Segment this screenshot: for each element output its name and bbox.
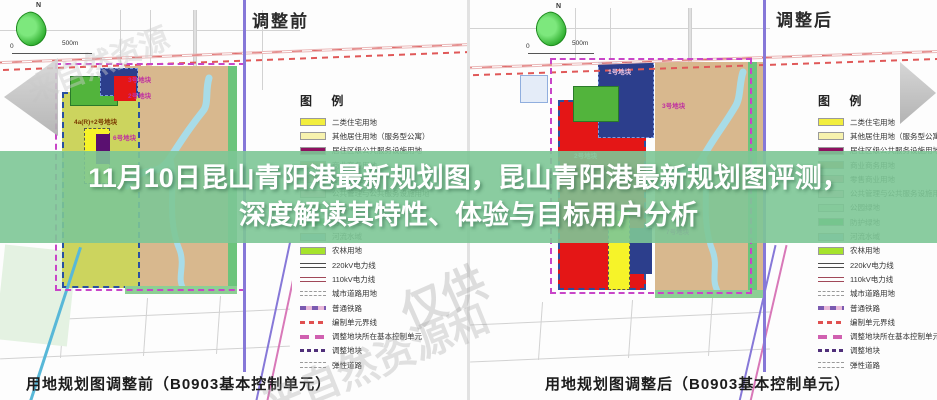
legend-row: 110kV电力线 <box>292 272 465 286</box>
legend-row: 二类住宅用地 <box>292 115 465 129</box>
scale-bar <box>528 53 594 54</box>
legend-swatch-icon <box>818 118 844 126</box>
legend-swatch-icon <box>300 291 326 296</box>
scale-label: 500m <box>62 40 78 47</box>
legend-label: 城市道路用地 <box>332 288 377 299</box>
legend-label: 编制单元界线 <box>332 317 377 328</box>
legend-label: 调整地块 <box>332 345 362 356</box>
scale-bar <box>12 53 92 54</box>
road-line <box>216 296 221 354</box>
map-state-label: 调整后 <box>776 6 833 31</box>
legend-label: 二类住宅用地 <box>332 117 377 128</box>
legend-row: 110kV电力线 <box>810 272 937 286</box>
road-line <box>708 298 713 356</box>
banner-title-line1: 11月10日昆山青阳港最新规划图，昆山青阳港最新规划图评测， <box>0 160 937 197</box>
legend-row: 220kV电力线 <box>292 258 465 272</box>
road-line <box>143 298 148 356</box>
location-inset-blob <box>531 8 570 50</box>
legend-swatch-icon <box>300 321 326 324</box>
parcel-label: 4a(R)+2号地块 <box>74 116 117 126</box>
legend-label: 调整地块 <box>850 345 880 356</box>
legend-swatch-icon <box>818 132 844 140</box>
legend-label: 110kV电力线 <box>332 274 375 285</box>
legend-label: 调整地块所在基本控制单元 <box>850 331 937 342</box>
legend-swatch-icon <box>300 247 326 255</box>
legend-label: 二类住宅用地 <box>850 117 895 128</box>
legend-row: 编制单元界线 <box>292 315 465 329</box>
parcel-label: 1号地块 <box>608 66 631 76</box>
legend-row: 农林用地 <box>810 244 937 258</box>
legend-row: 普通铁路 <box>292 301 465 315</box>
road-line <box>470 28 770 29</box>
road-line <box>610 8 611 60</box>
legend-label: 农林用地 <box>850 245 880 256</box>
next-arrow-icon[interactable] <box>900 62 936 124</box>
legend-label: 220kV电力线 <box>850 260 894 271</box>
legend-row: 其他居住用地（服务型公寓） <box>292 129 465 143</box>
title-banner: 11月10日昆山青阳港最新规划图，昆山青阳港最新规划图评测， 深度解读其特性、体… <box>0 151 937 243</box>
legend-label: 110kV电力线 <box>850 274 893 285</box>
legend-swatch-icon <box>818 306 844 310</box>
legend-swatch-icon <box>818 321 844 324</box>
prev-arrow-icon[interactable] <box>4 58 58 136</box>
parcel-label: 3号地块 <box>128 74 151 84</box>
legend-row: 调整地块 <box>810 344 937 358</box>
legend-row: 城市道路用地 <box>292 287 465 301</box>
legend-swatch-icon <box>300 118 326 126</box>
legend-swatch-icon <box>300 263 326 268</box>
legend-row: 农林用地 <box>292 244 465 258</box>
legend-label: 普通铁路 <box>850 303 880 314</box>
legend-swatch-icon <box>818 291 844 296</box>
legend-label: 编制单元界线 <box>850 317 895 328</box>
legend-row: 弹性道路 <box>292 358 465 372</box>
legend-swatch-icon <box>818 263 844 268</box>
legend-swatch-icon <box>300 362 326 368</box>
legend-label: 弹性道路 <box>850 360 880 371</box>
legend-label: 其他居住用地（服务型公寓） <box>332 131 430 142</box>
legend-label: 其他居住用地（服务型公寓） <box>850 131 937 142</box>
legend-label: 弹性道路 <box>332 360 362 371</box>
north-indicator: N <box>36 2 41 9</box>
legend-row: 其他居住用地（服务型公寓） <box>810 129 937 143</box>
legend-swatch-icon <box>300 132 326 140</box>
legend-swatch-icon <box>300 306 326 310</box>
legend-swatch-icon <box>300 335 326 339</box>
legend-swatch-icon <box>300 277 326 282</box>
map-state-label: 调整前 <box>252 7 309 32</box>
map-caption-before: 用地规划图调整前（B0903基本控制单元） <box>26 373 331 394</box>
legend-row: 调整地块 <box>292 344 465 358</box>
banner-title-line2: 深度解读其特性、体验与目标用户分析 <box>0 197 937 234</box>
map-caption-after: 用地规划图调整后（B0903基本控制单元） <box>545 373 850 394</box>
legend-swatch-icon <box>818 247 844 255</box>
legend-swatch-icon <box>818 277 844 282</box>
screenshot-root: 3号地块 2号地块 4a(R)+2号地块 6号地块 N 0 500m 调整前 图… <box>0 0 937 400</box>
legend-label: 调整地块所在基本控制单元 <box>332 331 422 342</box>
scale-zero: 0 <box>10 43 14 50</box>
legend-swatch-icon <box>818 349 844 352</box>
location-inset-blob <box>11 8 50 50</box>
scale-zero: 0 <box>526 43 530 50</box>
parcel-label: 6号地块 <box>113 132 136 142</box>
legend-row: 调整地块所在基本控制单元 <box>292 329 465 343</box>
road-line <box>470 348 770 362</box>
legend-swatch-icon <box>818 335 844 339</box>
legend-row: 弹性道路 <box>810 358 937 372</box>
legend-label: 农林用地 <box>332 245 362 256</box>
road-line <box>628 300 633 358</box>
parcel-label: 2号地块 <box>128 90 151 100</box>
legend-swatch-icon <box>300 349 326 352</box>
legend-label: 普通铁路 <box>332 303 362 314</box>
legend-label: 城市道路用地 <box>850 288 895 299</box>
legend-label: 220kV电力线 <box>332 260 376 271</box>
parcel-label: 3号地块 <box>662 100 685 110</box>
legend-title: 图 例 <box>300 92 465 109</box>
legend-row: 城市道路用地 <box>810 287 937 301</box>
legend-row: 编制单元界线 <box>810 315 937 329</box>
legend-row: 调整地块所在基本控制单元 <box>810 329 937 343</box>
scale-label: 500m <box>572 40 588 47</box>
parcel-blue-outline <box>520 75 548 103</box>
legend-swatch-icon <box>818 362 844 368</box>
legend-row: 220kV电力线 <box>810 258 937 272</box>
road-line <box>538 302 543 360</box>
north-indicator: N <box>556 3 561 10</box>
legend-row: 普通铁路 <box>810 301 937 315</box>
road-line <box>470 311 770 325</box>
